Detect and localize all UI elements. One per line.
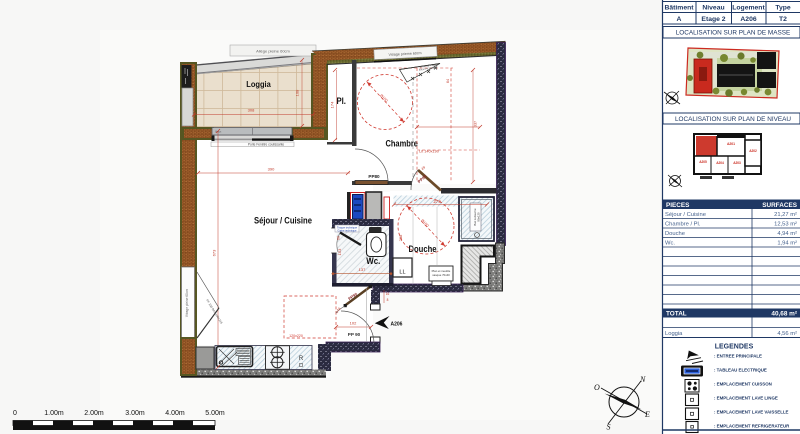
svg-text:A202: A202 [749,149,757,153]
svg-text:64: 64 [446,79,450,83]
svg-text:Séjour / Cuisine: Séjour / Cuisine [254,216,312,226]
svg-text:TOTAL: TOTAL [666,311,687,318]
svg-text:A206: A206 [391,322,403,328]
svg-text:208: 208 [398,234,403,241]
svg-text:LOCALISATION SUR PLAN DE NIVEA: LOCALISATION SUR PLAN DE NIVEAU [675,116,791,123]
svg-text:vasque 70x40: vasque 70x40 [432,273,450,277]
svg-text:8: 8 [387,298,389,302]
svg-text:1.00m: 1.00m [44,410,64,417]
svg-text:Douche: Douche [409,244,437,254]
svg-text:A201: A201 [727,142,735,146]
svg-text:337: 337 [474,121,478,127]
svg-text:Etage 2: Etage 2 [701,16,725,23]
svg-text:S: S [607,423,611,432]
svg-text:108: 108 [295,89,300,96]
svg-text:60: 60 [337,236,341,240]
svg-text:A203: A203 [733,161,741,165]
svg-text:102: 102 [350,321,357,326]
svg-text:Séjour / Cuisine: Séjour / Cuisine [665,212,706,218]
svg-text:40,68 m²: 40,68 m² [771,311,797,318]
svg-text:4,94 m²: 4,94 m² [777,231,797,237]
svg-text:: TABLEAU ELECTRIQUE: : TABLEAU ELECTRIQUE [714,368,767,373]
svg-text:174: 174 [330,101,335,108]
svg-text:Wc.: Wc. [366,256,380,266]
svg-text:137: 137 [359,267,366,272]
svg-text:21,27 m²: 21,27 m² [774,212,797,218]
svg-text:3.00m: 3.00m [125,410,145,417]
svg-text:: EMPLACEMENT LAVE VAISSELLE: : EMPLACEMENT LAVE VAISSELLE [714,410,789,415]
svg-text:: EMPLACEMENT CUISSON: : EMPLACEMENT CUISSON [714,382,772,387]
svg-text:16: 16 [386,292,390,296]
svg-text:279: 279 [433,199,441,204]
svg-text:: EMPLACEMENT REFRIGERATEUR: : EMPLACEMENT REFRIGERATEUR [714,424,790,429]
svg-text:PP80: PP80 [368,174,380,179]
svg-text:Pl.: Pl. [336,96,346,107]
svg-text:Lit 140x190: Lit 140x190 [419,150,439,154]
svg-text:N: N [639,375,646,384]
svg-text:A204: A204 [716,161,724,165]
svg-text:153: 153 [337,248,342,255]
svg-text:673: 673 [212,249,217,256]
svg-text:390: 390 [268,167,275,172]
svg-text:12,53 m²: 12,53 m² [774,222,797,228]
svg-text:Bâtiment: Bâtiment [664,5,694,12]
svg-text:Type: Type [775,5,791,12]
svg-text:Wc.: Wc. [665,241,675,247]
svg-text:1,94 m²: 1,94 m² [777,241,797,247]
svg-text:4,56 m²: 4,56 m² [777,331,797,337]
svg-text:PP 90: PP 90 [348,332,361,337]
svg-text:: EMPLACEMENT LAVE LINGE: : EMPLACEMENT LAVE LINGE [714,396,778,401]
svg-text:Porte Fenêtre coulissante: Porte Fenêtre coulissante [248,143,285,147]
svg-text:E: E [644,410,650,419]
svg-text:Niveau: Niveau [702,5,724,12]
svg-text:308: 308 [248,108,255,113]
svg-text:90x120: 90x120 [477,212,481,222]
svg-text:LL: LL [399,270,405,276]
svg-text:: ENTREE PRINCIPALE: : ENTREE PRINCIPALE [714,354,762,359]
svg-text:A205: A205 [699,160,707,164]
svg-text:O: O [594,383,600,392]
svg-text:Loggia: Loggia [665,331,683,337]
svg-text:T2: T2 [779,16,787,23]
svg-text:R: R [299,356,304,362]
svg-text:Vitrage pleine 60cm: Vitrage pleine 60cm [185,289,189,317]
svg-text:120x220: 120x220 [289,334,303,338]
svg-text:Douche: Douche [665,231,685,237]
svg-text:A: A [677,16,682,23]
svg-text:0: 0 [13,410,17,417]
svg-text:Allège pleine 60cm: Allège pleine 60cm [256,49,290,54]
svg-text:LOCALISATION SUR PLAN DE MASSE: LOCALISATION SUR PLAN DE MASSE [676,30,791,37]
svg-text:Chambre / Pl.: Chambre / Pl. [665,222,701,228]
svg-text:SURFACES: SURFACES [762,202,798,209]
svg-text:PIECES: PIECES [666,202,690,209]
svg-text:Logement: Logement [732,5,765,12]
svg-text:4.00m: 4.00m [165,410,185,417]
svg-text:A206: A206 [740,16,756,23]
svg-text:Loggia: Loggia [246,79,271,89]
svg-text:5.00m: 5.00m [205,410,225,417]
svg-text:LEGENDES: LEGENDES [715,344,754,351]
svg-text:2.00m: 2.00m [84,410,104,417]
